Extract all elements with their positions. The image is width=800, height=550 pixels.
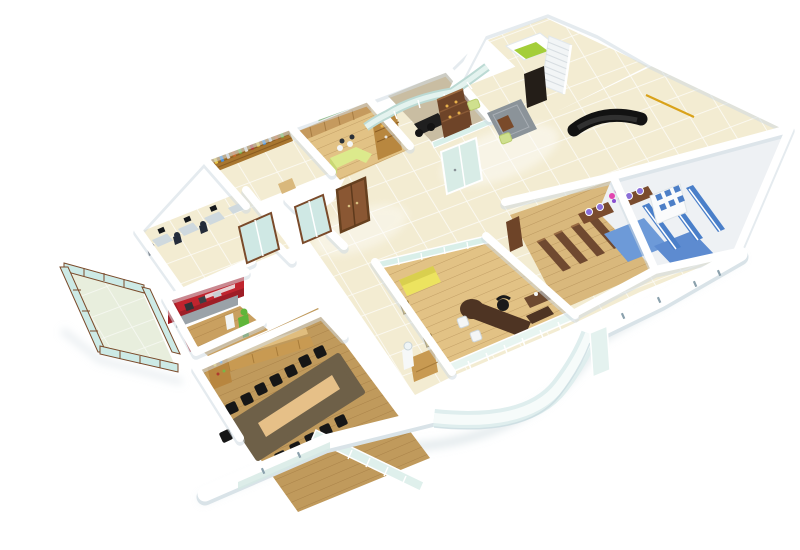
floor-plan-svg [0,0,800,550]
reception-chair [347,141,353,147]
book [223,370,226,373]
shelf-item [385,136,388,139]
reception-chair [337,145,343,151]
manager-chair [497,299,509,311]
credenza-item [534,292,538,296]
cabin-chair [415,129,423,137]
water-jug [404,342,412,350]
person [350,135,355,140]
facade-glass-strip [590,326,610,377]
glass-terrace-balcony [60,263,180,372]
person [340,139,345,144]
book [217,373,220,376]
floor-plan-render [0,0,800,550]
cabin-chair [427,123,435,131]
